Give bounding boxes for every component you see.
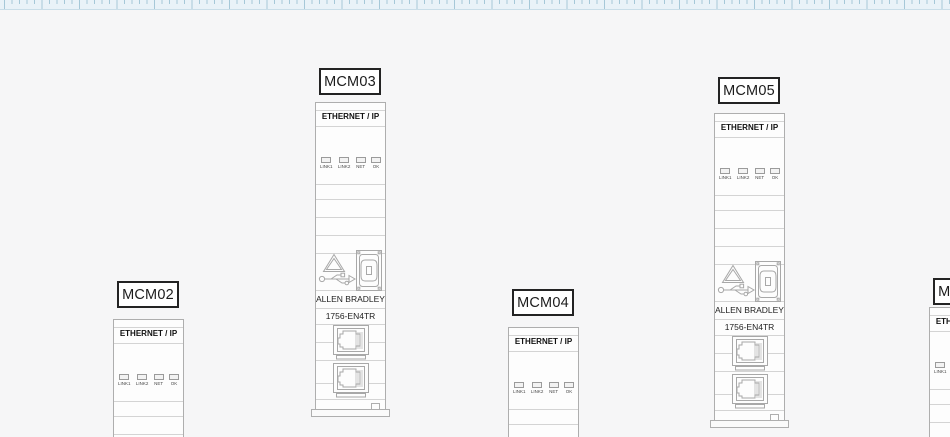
divider-line: [114, 416, 183, 417]
led-indicator: [738, 168, 748, 174]
warning-triangle-icon: [721, 264, 745, 284]
led-label: LINK2: [531, 390, 544, 395]
ethernet-ip-header: ETHERNET / IP: [715, 123, 784, 132]
divider-line: [930, 331, 950, 332]
model-text: 1756-EN4TR: [715, 322, 784, 332]
led-link2: LINK2: [737, 168, 750, 181]
module-label: MCM05: [723, 83, 775, 99]
led-indicator: [770, 168, 780, 174]
led-link2: LINK2: [531, 382, 544, 395]
divider-line: [316, 360, 385, 361]
module-label-box[interactable]: MCM04: [512, 289, 574, 316]
module-label-box[interactable]: MCM06: [933, 278, 950, 305]
led-status-row: LINK1 LINK2 NET OK: [715, 168, 784, 181]
ethernet-jack-icon: [332, 324, 370, 360]
ethernet-jack-icon: [731, 373, 769, 409]
divider-line: [930, 389, 950, 390]
led-link2: LINK2: [136, 374, 149, 387]
module-body[interactable]: ETHERNET / IP LINK1 LINK2 NET OK: [929, 307, 950, 437]
led-link1: LINK1: [719, 168, 732, 181]
divider-line: [930, 315, 950, 316]
led-label: LINK1: [118, 382, 131, 387]
led-net: NET: [549, 382, 559, 395]
divider-line: [114, 401, 183, 402]
usb-icon: [717, 282, 755, 298]
divider-line: [114, 343, 183, 344]
led-indicator: [720, 168, 730, 174]
module-label: MCM06: [938, 284, 950, 300]
divider-line: [316, 235, 385, 236]
divider-line: [715, 410, 784, 411]
led-label: OK: [772, 176, 779, 181]
led-label: LINK1: [719, 176, 732, 181]
led-link2: LINK2: [338, 157, 351, 170]
divider-line: [114, 434, 183, 435]
divider-line: [509, 335, 578, 336]
divider-line: [316, 217, 385, 218]
led-label: NET: [755, 176, 764, 181]
led-link1: LINK1: [513, 382, 526, 395]
brand-text: ALLEN BRADLEY: [715, 305, 784, 315]
module-base-bar: [311, 409, 390, 417]
led-label: NET: [154, 382, 163, 387]
led-net: NET: [154, 374, 164, 387]
module-label-box[interactable]: MCM03: [319, 68, 381, 95]
comm-port-icon: [755, 261, 781, 302]
led-indicator: [549, 382, 559, 388]
led-link1: LINK1: [118, 374, 131, 387]
led-label: LINK2: [737, 176, 750, 181]
divider-line: [114, 327, 183, 328]
module-body[interactable]: ETHERNET / IP LINK1 LINK2 NET OK: [113, 319, 184, 437]
led-indicator: [935, 362, 945, 368]
led-link1: LINK1: [320, 157, 333, 170]
led-label: OK: [171, 382, 178, 387]
led-label: LINK2: [338, 165, 351, 170]
led-ok: OK: [564, 382, 574, 395]
led-label: LINK1: [934, 370, 947, 375]
led-indicator: [169, 374, 179, 380]
led-label: OK: [373, 165, 380, 170]
divider-line: [715, 228, 784, 229]
ethernet-ip-header: ETHERNET / IP: [316, 112, 385, 121]
led-ok: OK: [770, 168, 780, 181]
led-indicator: [514, 382, 524, 388]
led-net: NET: [356, 157, 366, 170]
led-ok: OK: [169, 374, 179, 387]
ethernet-ip-header: ETHERNET / IP: [114, 329, 183, 338]
usb-icon: [318, 271, 356, 287]
led-indicator: [564, 382, 574, 388]
divider-line: [715, 246, 784, 247]
divider-line: [316, 126, 385, 127]
module-body[interactable]: ETHERNET / IP LINK1 LINK2 NET OK: [714, 113, 785, 421]
led-indicator: [137, 374, 147, 380]
module-label: MCM02: [122, 287, 174, 303]
comm-port-icon: [356, 250, 382, 291]
ethernet-jack-icon: [332, 362, 370, 398]
module-body[interactable]: ETHERNET / IP LINK1 LINK2 NET OK: [508, 327, 579, 437]
divider-line: [316, 110, 385, 111]
led-status-row: LINK1 LINK2 NET OK: [509, 382, 578, 395]
brand-text: ALLEN BRADLEY: [316, 294, 385, 304]
divider-line: [715, 210, 784, 211]
led-status-row: LINK1 LINK2 NET OK: [316, 157, 385, 170]
divider-line: [316, 399, 385, 400]
led-label: LINK1: [513, 390, 526, 395]
divider-line: [316, 308, 385, 309]
led-label: NET: [356, 165, 365, 170]
divider-line: [930, 404, 950, 405]
ethernet-ip-header: ETHERNET / IP: [930, 317, 950, 326]
divider-line: [316, 199, 385, 200]
module-label: MCM04: [517, 295, 569, 311]
ethernet-ip-header: ETHERNET / IP: [509, 337, 578, 346]
led-indicator: [339, 157, 349, 163]
led-label: LINK1: [320, 165, 333, 170]
divider-line: [509, 351, 578, 352]
divider-line: [930, 422, 950, 423]
led-label: OK: [566, 390, 573, 395]
ethernet-jack-icon: [731, 335, 769, 371]
led-label: LINK2: [136, 382, 149, 387]
led-indicator: [154, 374, 164, 380]
led-label: NET: [549, 390, 558, 395]
led-status-row: LINK1 LINK2 NET OK: [114, 374, 183, 387]
canvas[interactable]: MCM02 ETHERNET / IP LINK1: [0, 10, 950, 437]
divider-line: [715, 319, 784, 320]
divider-line: [509, 424, 578, 425]
led-ok: OK: [371, 157, 381, 170]
divider-line: [316, 184, 385, 185]
divider-line: [715, 195, 784, 196]
divider-line: [715, 371, 784, 372]
led-status-row: LINK1 LINK2 NET OK: [930, 362, 950, 375]
led-indicator: [119, 374, 129, 380]
module-label-box[interactable]: MCM05: [718, 77, 780, 104]
led-indicator: [356, 157, 366, 163]
module-label-box[interactable]: MCM02: [117, 281, 179, 308]
divider-line: [715, 121, 784, 122]
led-net: NET: [755, 168, 765, 181]
led-indicator: [321, 157, 331, 163]
divider-line: [715, 137, 784, 138]
model-text: 1756-EN4TR: [316, 311, 385, 321]
led-link1: LINK1: [934, 362, 947, 375]
led-indicator: [532, 382, 542, 388]
led-indicator: [755, 168, 765, 174]
divider-line: [509, 409, 578, 410]
module-base-bar: [710, 420, 789, 428]
led-indicator: [371, 157, 381, 163]
warning-triangle-icon: [322, 253, 346, 273]
module-label: MCM03: [324, 74, 376, 90]
application-window: MCM02 ETHERNET / IP LINK1: [0, 0, 950, 437]
module-body[interactable]: ETHERNET / IP LINK1 LINK2 NET OK: [315, 102, 386, 410]
horizontal-ruler: [0, 0, 950, 10]
